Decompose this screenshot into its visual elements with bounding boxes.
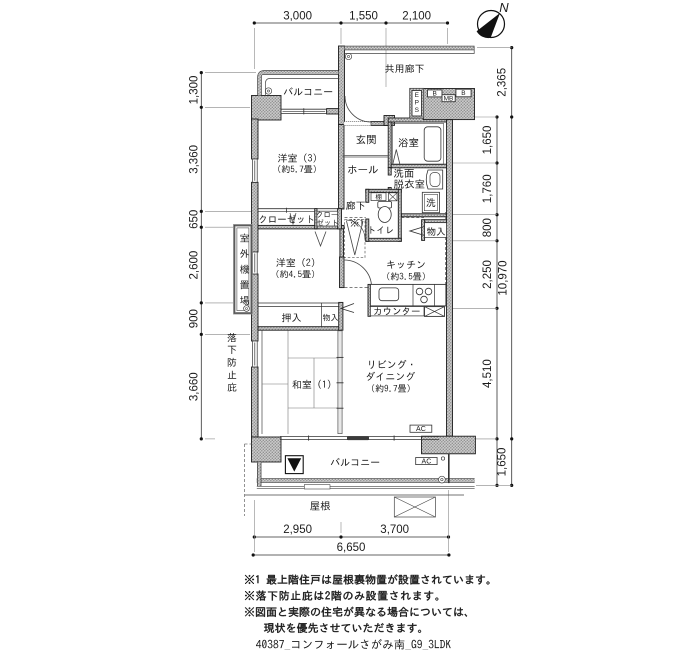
svg-text:3,700: 3,700	[380, 524, 409, 536]
svg-text:B: B	[461, 90, 465, 97]
svg-text:1,650: 1,650	[497, 448, 509, 477]
svg-text:900: 900	[189, 309, 201, 328]
svg-text:1,650: 1,650	[482, 126, 494, 155]
svg-text:6,650: 6,650	[337, 542, 366, 554]
svg-text:1,550: 1,550	[349, 11, 378, 23]
svg-text:650: 650	[189, 210, 201, 229]
svg-text:800: 800	[482, 218, 494, 237]
svg-text:3,360: 3,360	[189, 145, 201, 174]
svg-text:B: B	[433, 91, 437, 98]
svg-text:N: N	[499, 0, 509, 15]
svg-text:3,660: 3,660	[189, 372, 201, 401]
svg-text:10,970: 10,970	[498, 260, 510, 295]
svg-text:MB: MB	[444, 95, 454, 102]
svg-text:S: S	[415, 107, 420, 114]
svg-text:2,365: 2,365	[497, 68, 509, 97]
svg-text:3,000: 3,000	[283, 11, 312, 23]
svg-text:2,100: 2,100	[402, 11, 431, 23]
svg-text:1,760: 1,760	[482, 174, 494, 203]
svg-text:2,600: 2,600	[189, 251, 201, 280]
svg-text:2,250: 2,250	[482, 260, 494, 289]
svg-text:AC: AC	[416, 426, 426, 433]
svg-text:4,510: 4,510	[482, 359, 494, 388]
svg-text:P: P	[415, 100, 419, 107]
svg-text:2,950: 2,950	[283, 524, 312, 536]
svg-text:1,300: 1,300	[189, 76, 201, 105]
svg-text:E: E	[415, 92, 420, 99]
svg-text:AC: AC	[422, 459, 432, 466]
